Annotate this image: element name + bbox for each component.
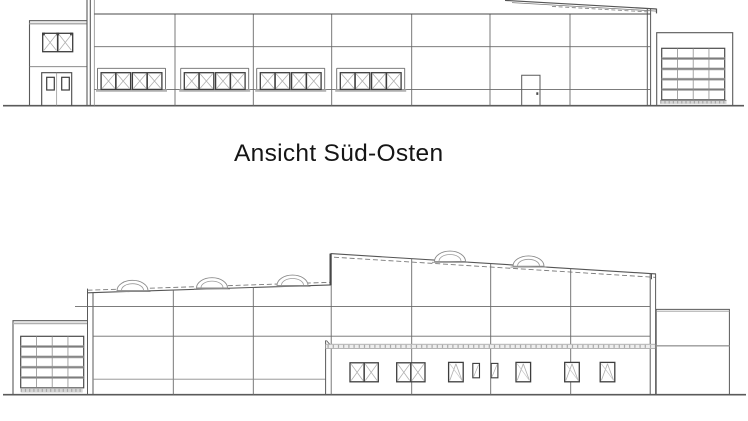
elevation-linework <box>0 0 748 421</box>
lower-left-annex <box>13 321 87 395</box>
drawing-title: Ansicht Süd-Osten <box>234 140 443 168</box>
upper-window-group-3 <box>255 68 326 92</box>
upper-window-group-4 <box>335 68 406 92</box>
upper-facade-door <box>522 75 540 106</box>
wing-window-slit-2 <box>491 363 498 377</box>
wing-window-slit-1 <box>473 363 480 377</box>
wing-window-double-1 <box>350 363 378 382</box>
wing-window-double-2 <box>397 363 425 382</box>
lower-right-annex <box>656 309 729 394</box>
wing-window-single-2 <box>516 362 531 381</box>
upper-elevation <box>3 0 744 106</box>
lower-sectional-gate <box>21 336 84 388</box>
annex-entrance-door <box>42 73 72 106</box>
upper-left-annex <box>30 21 88 106</box>
upper-right-annex <box>657 33 733 106</box>
annex-window <box>42 33 73 52</box>
lower-elevation <box>3 251 746 395</box>
upper-sectional-gate <box>662 48 725 100</box>
skylight-dome <box>511 256 547 267</box>
wing-window-single-1 <box>449 362 464 381</box>
lower-high-roof <box>331 254 656 286</box>
wing-window-single-3 <box>565 362 580 381</box>
upper-roof-edge <box>505 0 657 13</box>
skylight-dome <box>275 275 311 286</box>
skylight-dome <box>115 280 151 291</box>
skylight-dome <box>194 278 230 289</box>
upper-window-group-1 <box>96 68 167 92</box>
drawing-sheet: Ansicht Süd-Osten <box>0 0 748 421</box>
skylight-dome <box>432 251 468 262</box>
wing-window-single-4 <box>600 362 615 381</box>
upper-window-group-2 <box>179 68 250 92</box>
